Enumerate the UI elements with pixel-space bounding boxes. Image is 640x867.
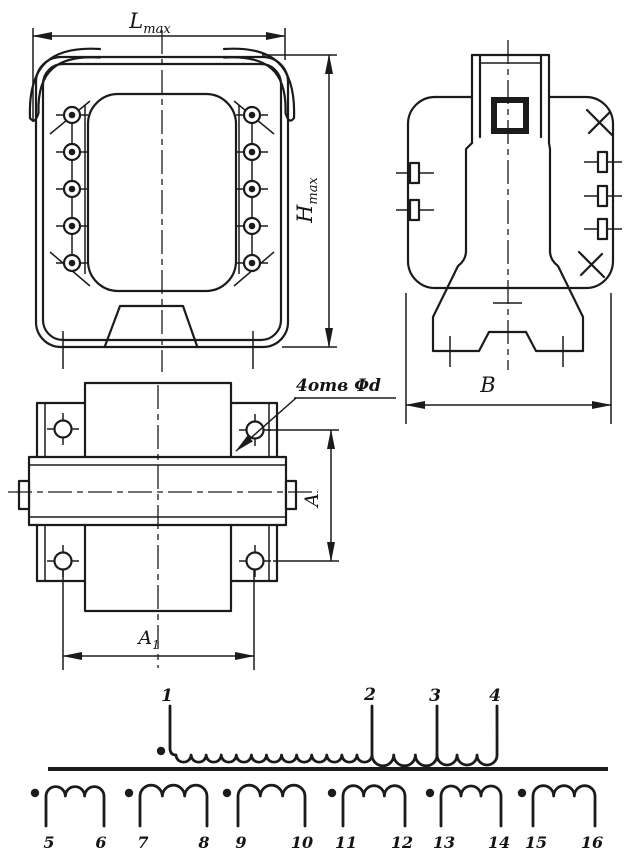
polarity-dot — [426, 789, 434, 797]
polarity-dot — [31, 789, 39, 797]
terminal-11: 11 — [335, 833, 357, 852]
terminal-9: 9 — [235, 833, 246, 852]
a-label: A — [301, 493, 323, 509]
terminal-10: 10 — [291, 833, 313, 852]
dimension-hmax: Hmax — [262, 55, 337, 347]
x-mark-top — [587, 110, 612, 135]
terminal-2: 2 — [363, 685, 376, 705]
technical-drawing: Lmax Hmax — [0, 0, 640, 867]
terminal-3: 3 — [429, 686, 441, 706]
secondary-winding-9-10: 9 10 — [223, 785, 313, 852]
secondary-winding-5-6: 5 6 — [31, 787, 107, 852]
polarity-dot-primary — [157, 747, 165, 755]
side-view: В — [396, 40, 622, 424]
winding-schematic: 1 2 3 4 5 6 7 8 9 10 11 12 — [31, 685, 608, 852]
terminal-13: 13 — [433, 833, 455, 852]
terminal-12: 12 — [391, 833, 413, 852]
terminal-16: 16 — [581, 833, 603, 852]
terminal-7: 7 — [137, 833, 148, 852]
terminal-4: 4 — [489, 686, 501, 706]
a1-label: A1 — [136, 627, 159, 652]
side-pins-left — [396, 163, 434, 220]
terminal-5: 5 — [43, 833, 54, 852]
plan-view: 4отв Φd A1 A — [8, 376, 396, 670]
side-pins-right — [584, 152, 622, 239]
front-view: Lmax Hmax — [30, 9, 337, 372]
top-bracket — [472, 55, 549, 143]
terminal-6: 6 — [95, 833, 106, 852]
hmax-label: Hmax — [293, 176, 321, 223]
x-mark-bottom — [579, 252, 604, 277]
polarity-dot — [223, 789, 231, 797]
secondary-winding-15-16: 15 16 — [518, 786, 603, 852]
terminal-14: 14 — [488, 833, 510, 852]
secondary-winding-11-12: 11 12 — [328, 786, 413, 852]
lmax-label: Lmax — [128, 9, 171, 37]
polarity-dot — [125, 789, 133, 797]
terminal-1: 1 — [161, 686, 173, 706]
primary-winding: 1 2 3 4 — [157, 685, 501, 766]
polarity-dot — [328, 789, 336, 797]
terminal-15: 15 — [525, 833, 547, 852]
secondary-winding-13-14: 13 14 — [426, 786, 510, 852]
holes-note-label: 4отв Φd — [296, 376, 381, 396]
secondary-winding-7-8: 7 8 — [125, 785, 210, 852]
b-label: В — [479, 373, 495, 397]
polarity-dot — [518, 789, 526, 797]
terminal-8: 8 — [197, 833, 209, 852]
dimension-lmax: Lmax — [33, 9, 285, 122]
